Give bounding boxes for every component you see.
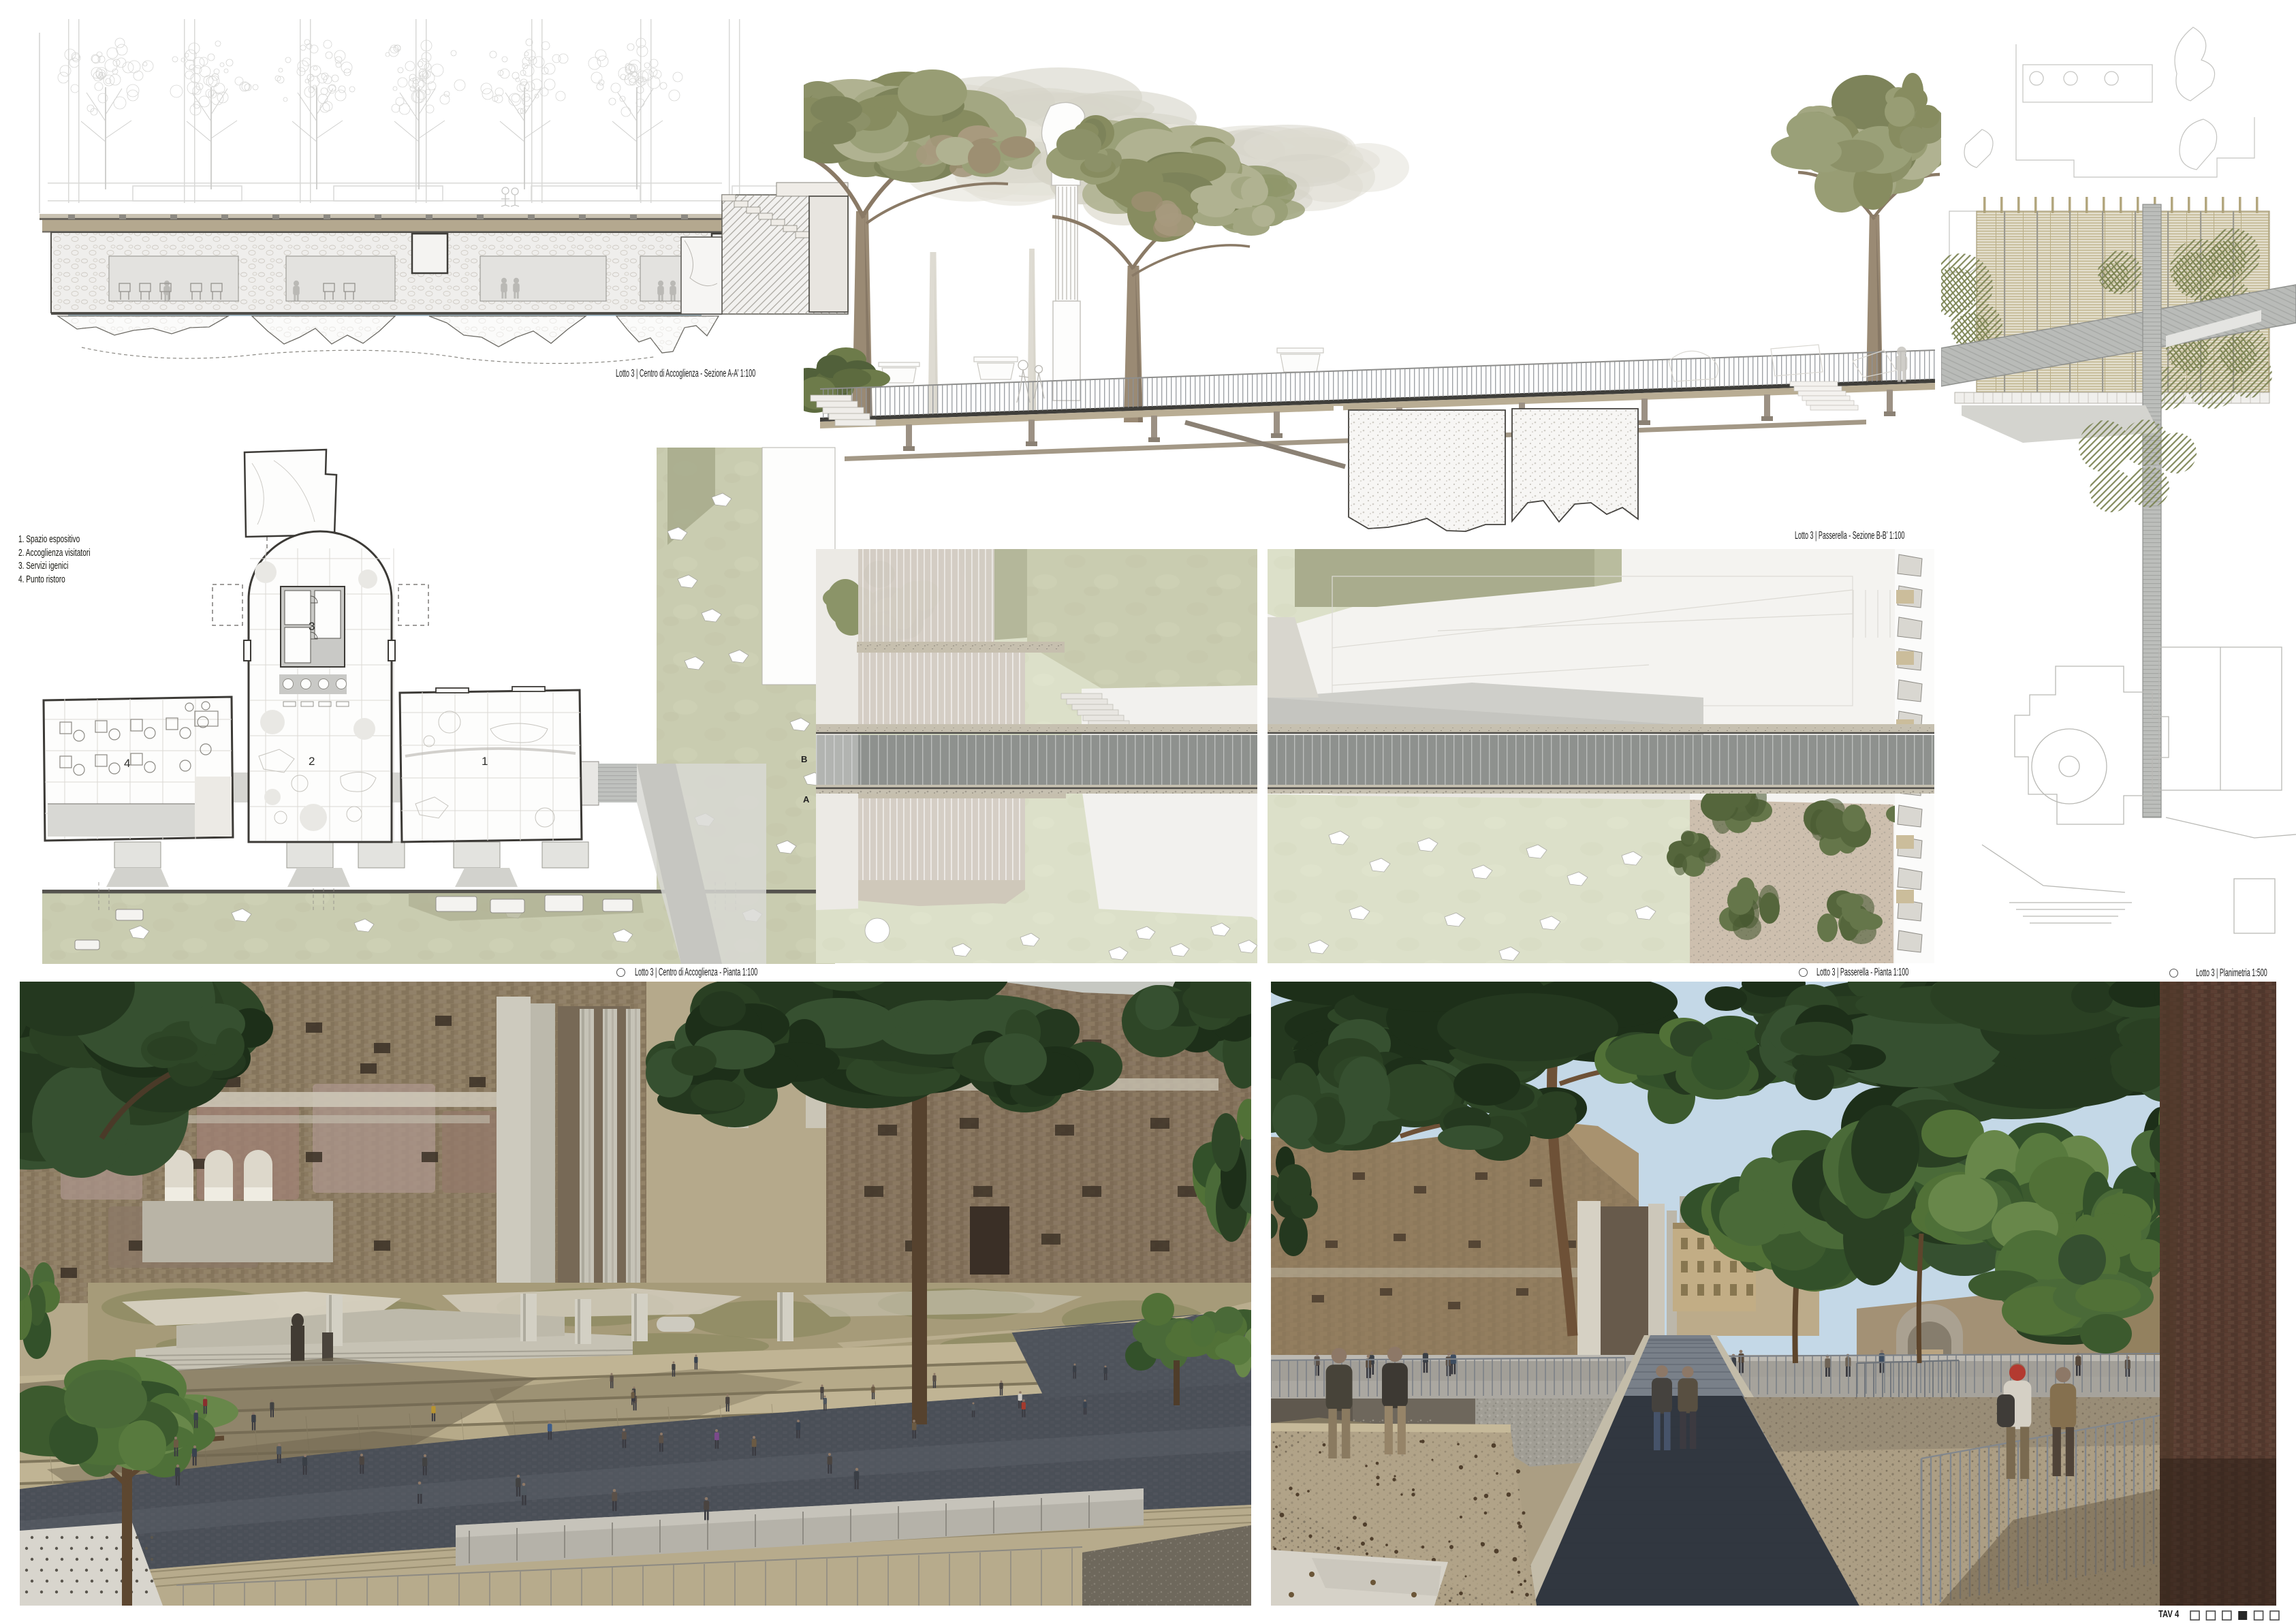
svg-text:3: 3 — [309, 620, 315, 633]
svg-text:1: 1 — [482, 755, 488, 768]
svg-text:2: 2 — [309, 755, 315, 768]
svg-text:4: 4 — [124, 757, 130, 770]
